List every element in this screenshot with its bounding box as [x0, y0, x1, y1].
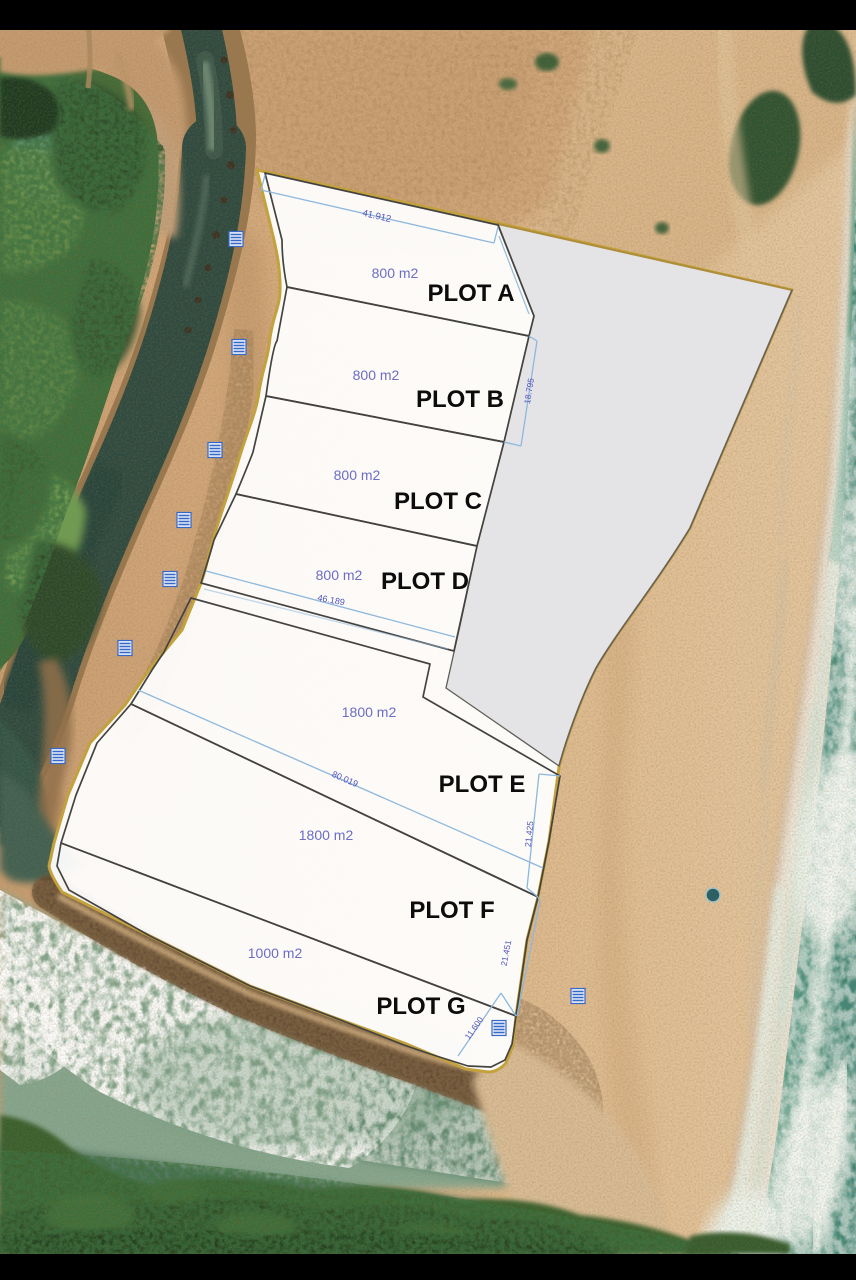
svg-text:PLOT G: PLOT G — [376, 993, 465, 1020]
svg-text:1800 m2: 1800 m2 — [342, 704, 397, 720]
svg-text:PLOT B: PLOT B — [416, 386, 504, 413]
svg-text:1000 m2: 1000 m2 — [248, 945, 303, 961]
svg-text:800 m2: 800 m2 — [353, 367, 400, 383]
svg-text:PLOT E: PLOT E — [439, 771, 526, 798]
svg-text:PLOT D: PLOT D — [381, 568, 469, 595]
svg-text:800 m2: 800 m2 — [372, 265, 419, 281]
svg-text:1800 m2: 1800 m2 — [299, 827, 354, 843]
svg-text:PLOT C: PLOT C — [394, 488, 482, 515]
svg-text:800 m2: 800 m2 — [334, 467, 381, 483]
svg-text:800 m2: 800 m2 — [316, 567, 363, 583]
svg-text:PLOT A: PLOT A — [427, 280, 514, 307]
svg-text:PLOT F: PLOT F — [409, 897, 494, 924]
